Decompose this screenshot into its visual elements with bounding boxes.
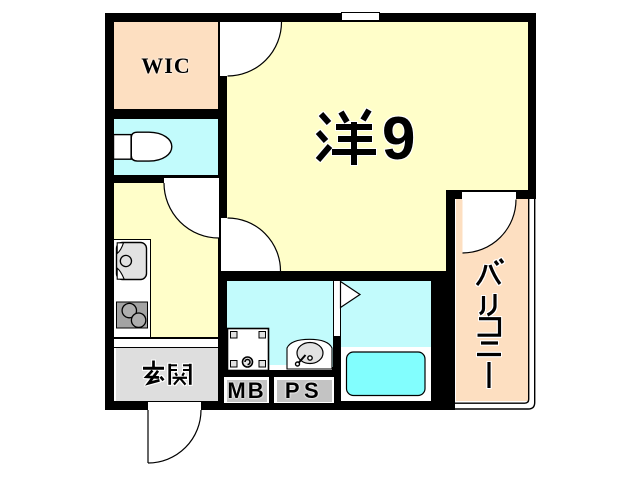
svg-text:9: 9	[382, 105, 415, 172]
